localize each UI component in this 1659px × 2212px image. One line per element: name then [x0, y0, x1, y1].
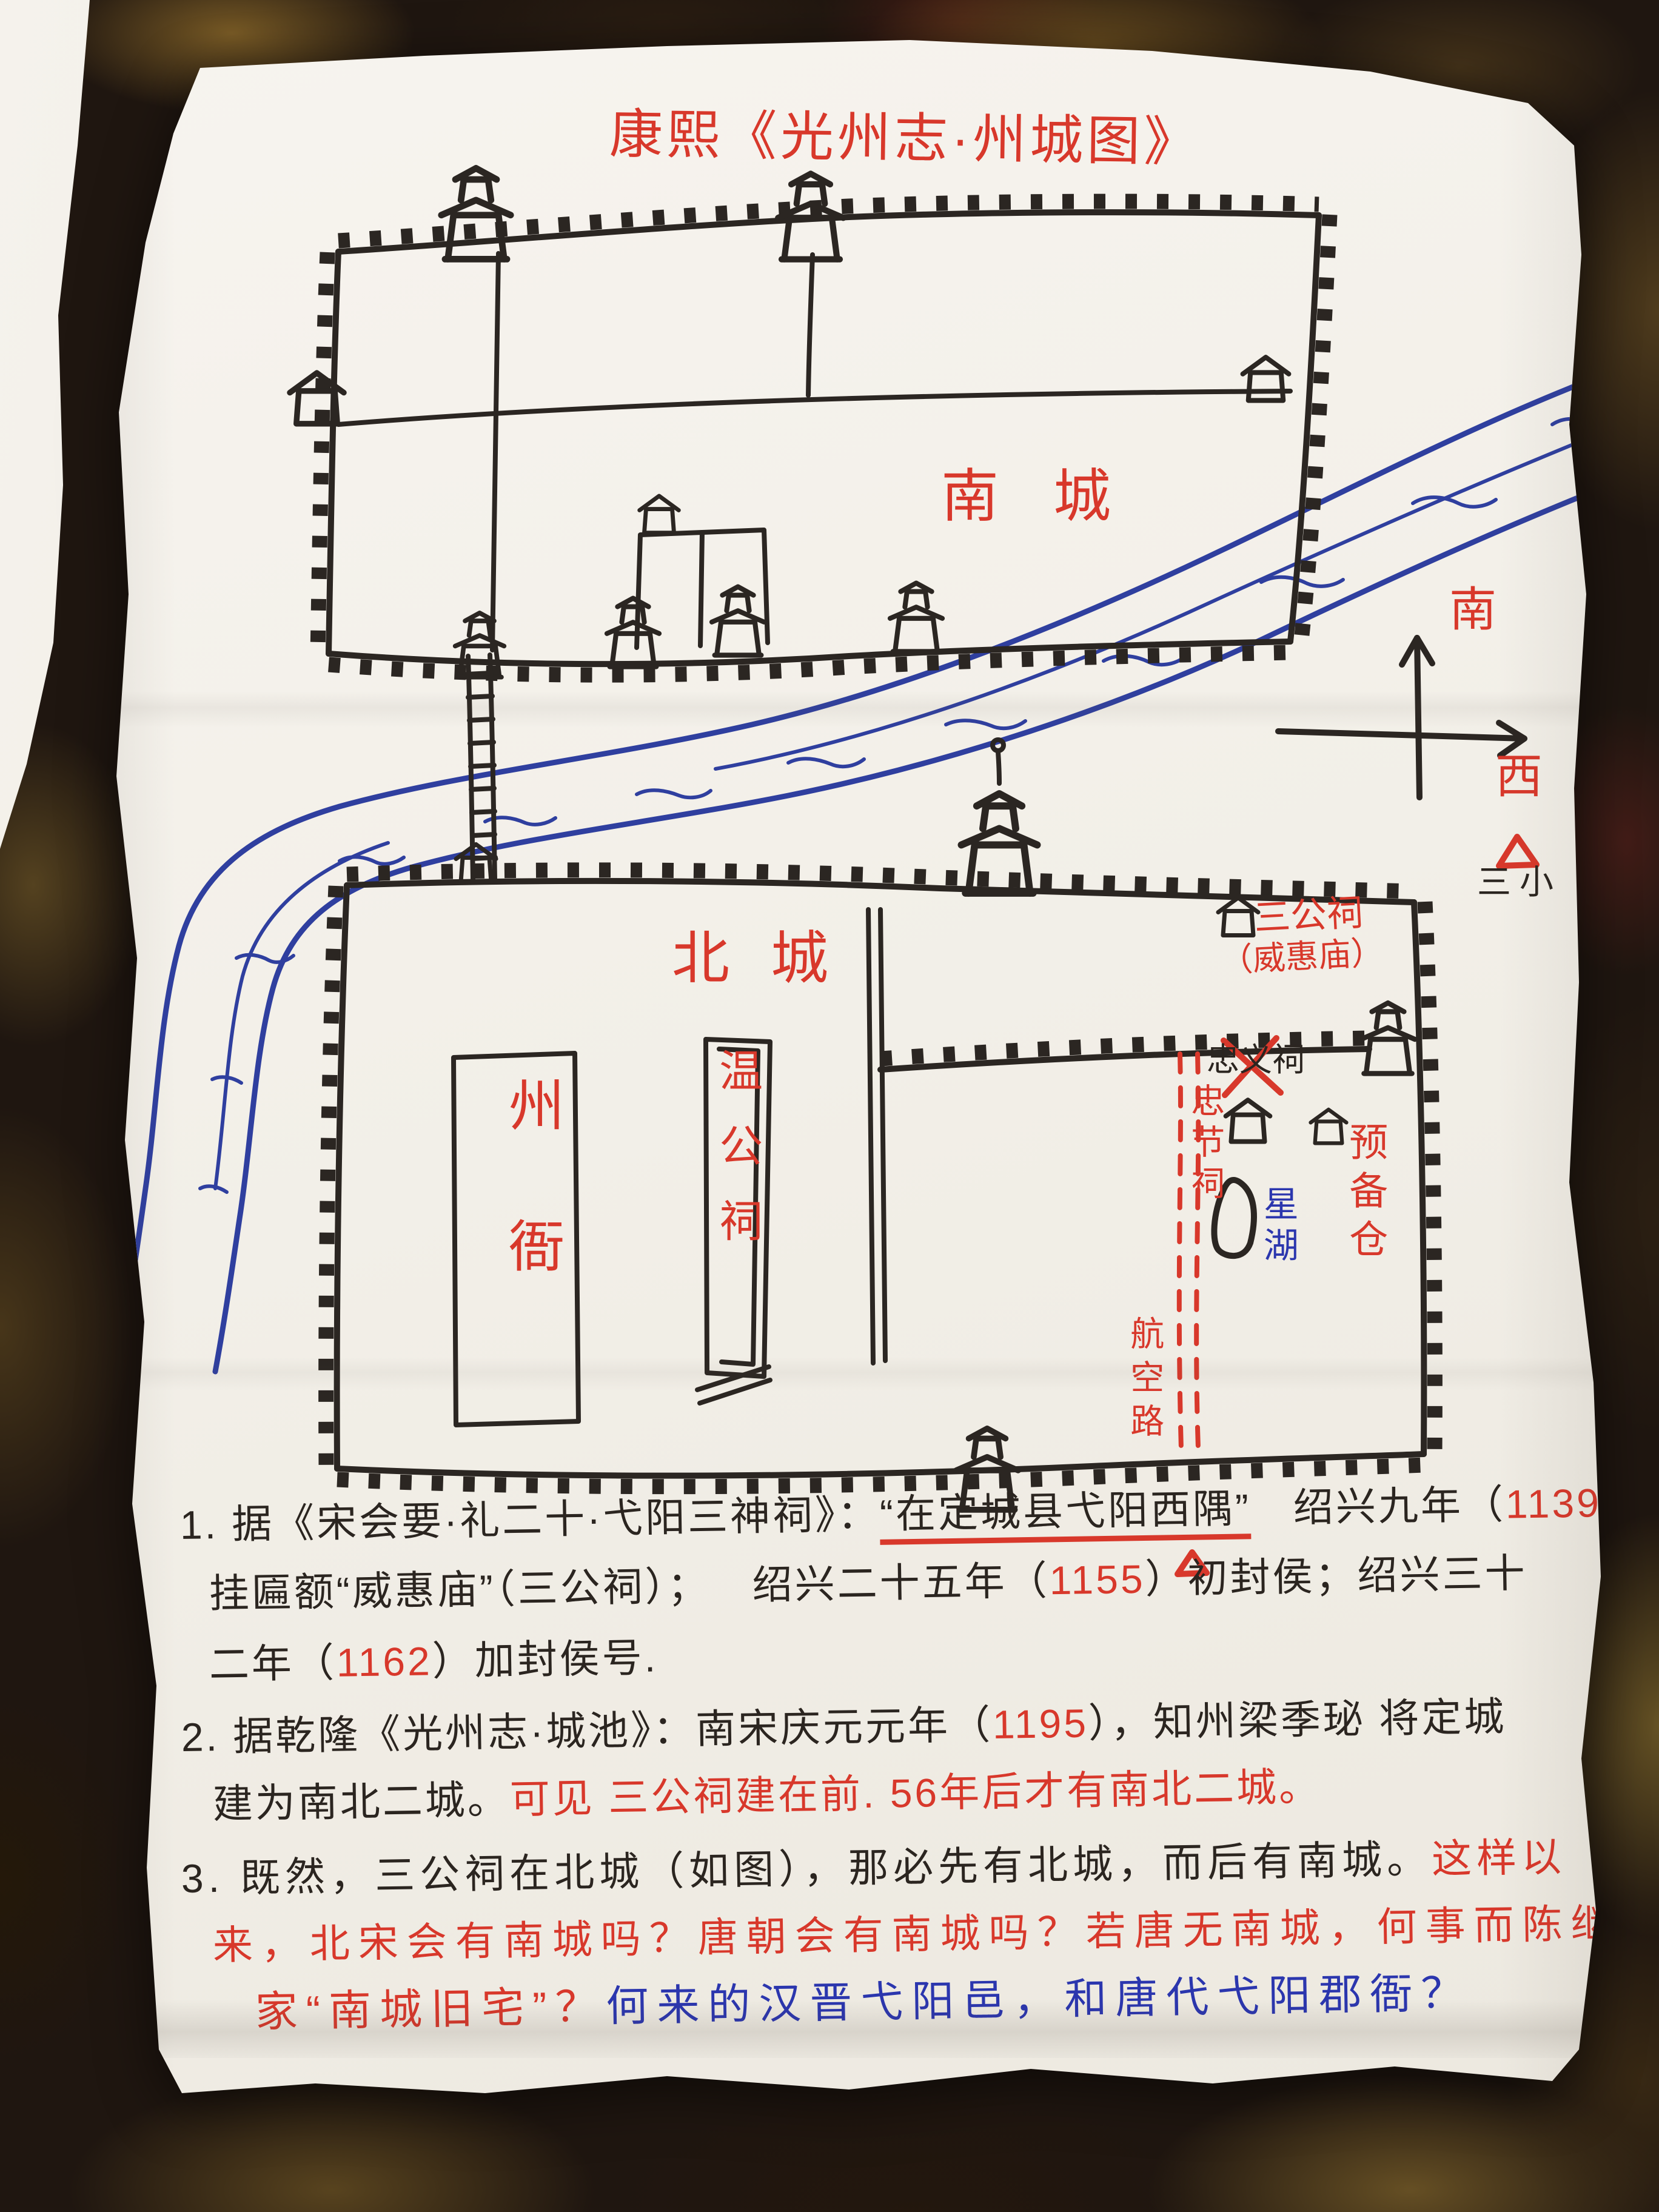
note-1-line-3: 二年（1162）加封侯号. [209, 1625, 659, 1691]
third-primary-school-label: 三小 [1477, 865, 1562, 900]
note1-enfeoff-text: ）初封侯；绍兴三十 [1145, 1550, 1527, 1601]
note1-year-1155: 1155 [1049, 1557, 1145, 1603]
note3-old-residence-red: 家“南城旧宅”？ [255, 1983, 606, 2036]
note1-title-text: ）加封侯号. [432, 1635, 658, 1683]
note3-red-start: 这样以 [1431, 1834, 1566, 1881]
carpet-background: 康熙《光州志·州城图》 南城 北城 州衙 温公祠 三公祠 （威惠庙） 忠义祠 忠… [0, 0, 1659, 2212]
aviation-road-label: 航空路 [1127, 1316, 1162, 1447]
note1-quote-underlined: “在定城县弋阳西隅” [879, 1486, 1251, 1545]
school-triangle-icon [1499, 837, 1537, 866]
note1-plaque-text: 挂匾额“威惠庙”（三公祠）； [209, 1563, 710, 1616]
zhongyi-shrine-crossed-label: 忠义祠 [1207, 1043, 1305, 1078]
compass-arrows [1278, 638, 1524, 797]
compass-west-label: 西 [1495, 752, 1543, 802]
note1-citation: 1. 据《宋会要·礼二十·弋阳三神祠》： [179, 1492, 880, 1547]
note2-conclusion-red: 可见 三公祠建在前. 56年后才有南北二城。 [509, 1764, 1321, 1822]
paper-wrap: 康熙《光州志·州城图》 南城 北城 州衙 温公祠 三公祠 （威惠庙） 忠义祠 忠… [0, 0, 1659, 2212]
prefecture-yamen-label: 州衙 [502, 1076, 561, 1358]
south-city-walls [318, 201, 1330, 675]
note2-magistrate-text: ），知州梁季珌 将定城 [1088, 1694, 1506, 1746]
granary-label: 预备仓 [1345, 1122, 1386, 1267]
note2-twocities-text: 建为南北二城。 [212, 1777, 510, 1826]
note3-final-question-blue: 何来的汉晋弋阳邑，和唐代弋阳郡衙？ [606, 1969, 1472, 2029]
page-title: 康熙《光州志·州城图》 [609, 106, 1201, 170]
note2-year-1195: 1195 [992, 1700, 1088, 1746]
compass-south-label: 南 [1449, 585, 1496, 635]
hand-drawn-map-paper: 康熙《光州志·州城图》 南城 北城 州衙 温公祠 三公祠 （威惠庙） 忠义祠 忠… [0, 0, 1659, 2212]
zhongjie-shrine-label: 忠节祠 [1187, 1083, 1223, 1207]
note1-year25-text: 绍兴二十五年（ [752, 1558, 1050, 1607]
note1-year-text: 绍兴九年（ [1293, 1482, 1506, 1530]
wengong-shrine-label: 温公祠 [713, 1048, 759, 1273]
north-city-towers [456, 740, 1415, 1510]
note2-citation: 2. 据乾隆《光州志·城池》：南宋庆元元年（ [181, 1702, 993, 1760]
note1-year-1139: 1139 [1505, 1480, 1601, 1526]
south-city-label: 南城 [941, 467, 1165, 528]
spacer [710, 1599, 752, 1600]
star-lake-label: 星湖 [1259, 1185, 1296, 1268]
note1-year32-text: 二年（ [209, 1640, 337, 1687]
spacer [1251, 1521, 1293, 1522]
sangong-shrine-label: 三公祠 [1253, 893, 1364, 937]
north-city-label: 北城 [672, 929, 870, 990]
note1-close-paren: ） [1601, 1480, 1644, 1525]
note1-year-1162: 1162 [336, 1638, 432, 1684]
